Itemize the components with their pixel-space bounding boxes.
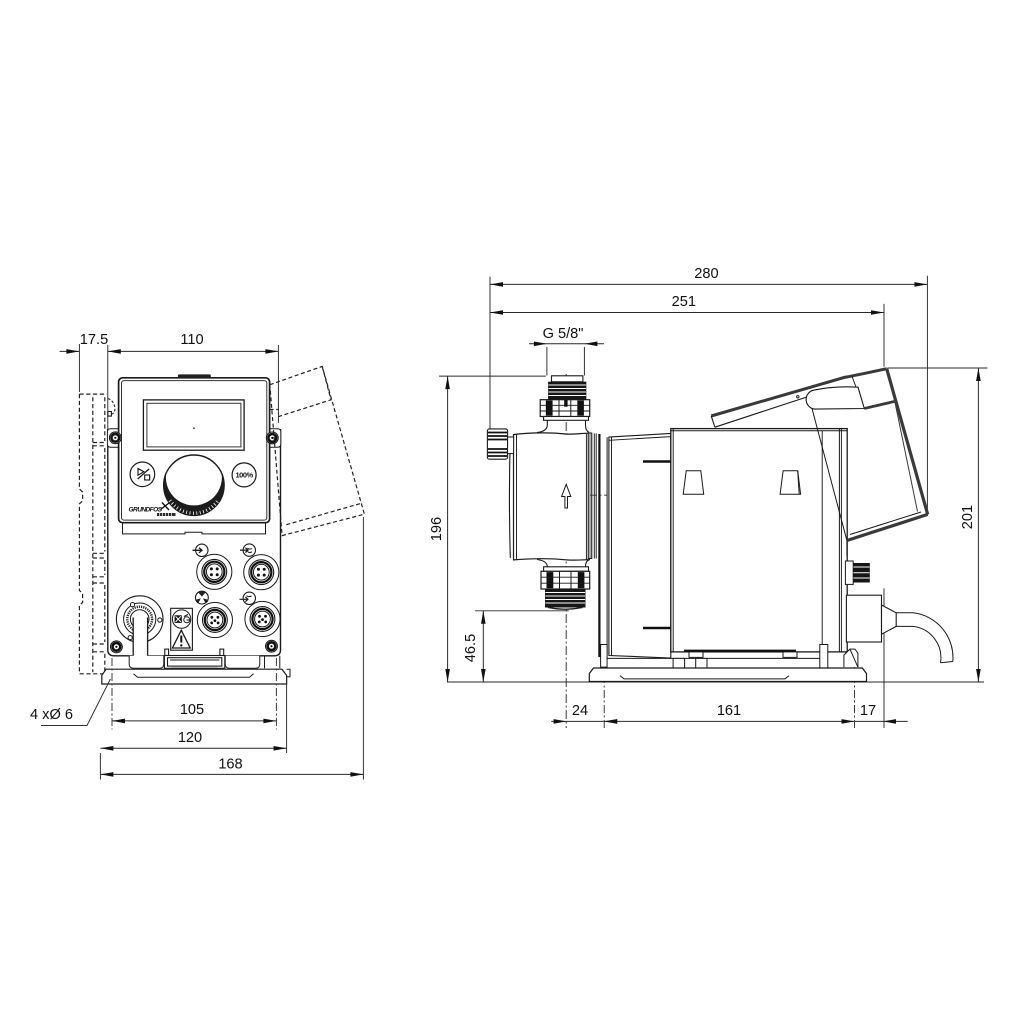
svg-text:17.5: 17.5 bbox=[80, 332, 108, 348]
svg-text:46.5: 46.5 bbox=[463, 634, 479, 662]
svg-text:201: 201 bbox=[960, 505, 976, 529]
svg-text:168: 168 bbox=[218, 757, 242, 773]
svg-text:196: 196 bbox=[429, 517, 445, 541]
svg-text:161: 161 bbox=[717, 703, 741, 719]
svg-text:24: 24 bbox=[572, 703, 588, 719]
svg-text:280: 280 bbox=[694, 266, 718, 282]
svg-text:100%: 100% bbox=[235, 471, 253, 480]
svg-text:G 5/8": G 5/8" bbox=[543, 326, 584, 342]
svg-text:251: 251 bbox=[672, 294, 696, 310]
svg-text:110: 110 bbox=[180, 332, 203, 348]
svg-text:17: 17 bbox=[860, 703, 876, 719]
svg-text:GRUNDFOS: GRUNDFOS bbox=[129, 507, 163, 514]
svg-text:120: 120 bbox=[178, 730, 202, 746]
svg-text:105: 105 bbox=[180, 702, 204, 718]
svg-text:4 xØ 6: 4 xØ 6 bbox=[30, 707, 73, 723]
